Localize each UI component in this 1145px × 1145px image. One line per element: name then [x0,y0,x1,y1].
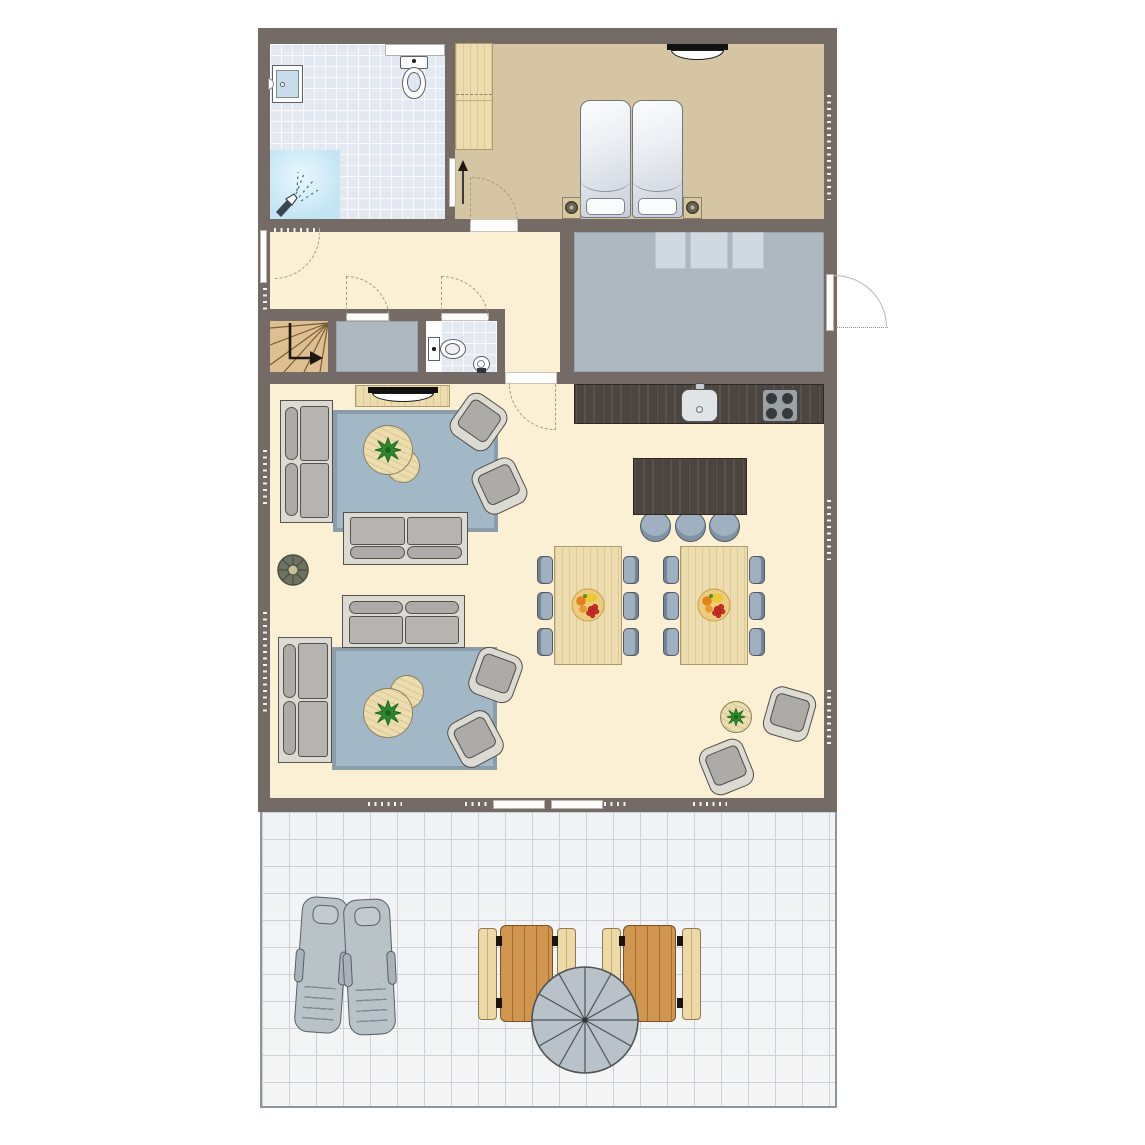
entrance-door-swing [834,275,887,327]
kitchen-faucet-icon [695,383,705,390]
table-bracket [677,936,683,946]
bathroom-shelf [385,44,445,56]
plant-icon [374,436,402,464]
bar-stool [675,511,706,542]
corner-sofa [280,400,333,523]
table-bracket [619,936,625,946]
radiator-icon [465,802,490,806]
entrance-door-leaf [826,274,834,331]
wc-sink-inner [477,360,485,368]
room-storage [336,321,418,372]
room-hallway-column [505,309,560,372]
burner-icon [766,408,777,419]
wardrobe [455,43,493,150]
table-bracket [496,998,502,1008]
bar-stool [640,511,671,542]
living-door-threshold [505,372,557,384]
bathroom-door-leaf [274,228,320,232]
burner-icon [782,408,793,419]
living-door-leaf [555,384,556,430]
toilet-bowl-inner [407,72,421,92]
floor-plan [0,0,1145,1145]
window-hallway [260,230,267,283]
corner-sofa [278,637,332,763]
dining-chair [623,556,639,584]
entrance-door-baseline [836,327,888,328]
radiator-icon [368,802,402,806]
arrow-up-icon [456,160,470,206]
shelf-unit [655,232,686,269]
shelf-unit [732,232,764,269]
burner-icon [766,393,777,404]
wc-button [432,347,436,351]
parasol-icon [530,965,640,1075]
kitchen-drain [696,406,703,413]
sofa [342,595,465,648]
shelf-unit [690,232,728,269]
storage-door-leaf [346,276,347,321]
wc-toilet-inner [445,343,460,355]
washing-machine-knob [280,82,285,87]
lamp-icon [565,201,578,214]
bed-pillow-left [586,198,625,215]
dining-chair [749,556,765,584]
radiator-icon [827,690,831,748]
terrace-door-right-leaf [551,800,603,809]
picnic-bench [478,928,497,1020]
sliding-panel-bathroom [449,158,456,207]
picnic-bench [682,928,701,1020]
dining-chair [623,592,639,620]
radiator-icon [827,95,831,200]
dining-chair [537,628,553,656]
radiator-icon [263,288,267,314]
dining-chair [663,592,679,620]
table-bracket [552,936,558,946]
dining-chair [537,556,553,584]
plant-icon [374,699,402,727]
kitchen-island [633,458,747,515]
burner-icon [782,393,793,404]
bed-pillow-right [638,198,677,215]
dining-chair [663,628,679,656]
shower-head-icon [270,150,340,219]
radiator-icon [263,450,267,507]
lamp-icon [686,201,699,214]
bedroom-door-leaf [470,177,471,222]
plant-icon [726,707,746,727]
toilet-button [412,59,416,63]
table-bracket [496,936,502,946]
dining-chair [623,628,639,656]
dining-chair [537,592,553,620]
dining-chair [749,592,765,620]
table-bracket [677,998,683,1008]
radiator-icon [604,802,630,806]
terrace-door-left-leaf [493,800,545,809]
dining-chair [663,556,679,584]
fruit-plate-icon [571,588,605,622]
radiator-icon [263,612,267,715]
wc-door-leaf [441,276,442,321]
radiator-icon [693,802,727,806]
sun-lounger [342,898,396,1036]
fruit-plate-icon [697,588,731,622]
dining-chair [749,628,765,656]
bar-stool [709,511,740,542]
sun-lounger [293,896,349,1035]
wc-sink-base [477,368,486,373]
ottoman [277,554,309,586]
stairs [270,321,328,372]
loveseat [343,512,468,565]
radiator-icon [827,500,831,560]
